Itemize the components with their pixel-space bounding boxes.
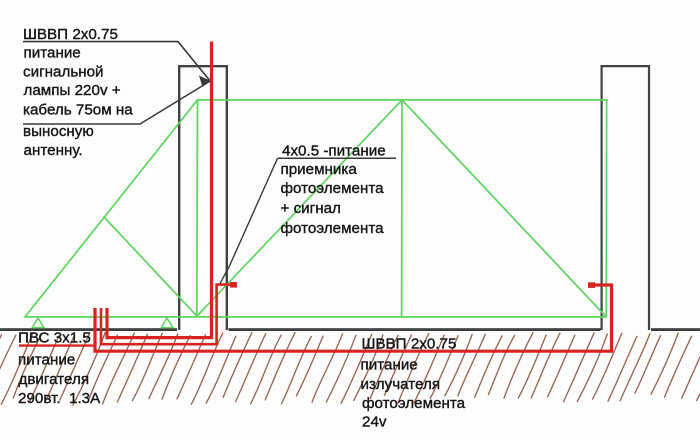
svg-text:приемника: приемника (281, 161, 358, 178)
svg-text:фотоэлемента: фотоэлемента (281, 180, 385, 197)
svg-text:выносную: выносную (23, 123, 94, 140)
svg-text:питание: питание (24, 45, 81, 62)
svg-text:4х0.5 -питание: 4х0.5 -питание (282, 142, 386, 159)
svg-text:ПВС 3х1.5: ПВС 3х1.5 (18, 330, 91, 347)
svg-text:антенну.: антенну. (24, 142, 83, 159)
svg-text:ШВВП 2х0.75: ШВВП 2х0.75 (23, 26, 118, 43)
svg-text:+ сигнал: + сигнал (281, 200, 341, 217)
svg-text:кабель 75ом на: кабель 75ом на (23, 102, 133, 119)
svg-text:24v: 24v (362, 413, 387, 430)
svg-text:290вт. 1.3А: 290вт. 1.3А (18, 390, 101, 407)
svg-text:лампы 220v +: лампы 220v + (24, 82, 121, 99)
svg-text:двигателя: двигателя (19, 371, 90, 388)
svg-text:питание: питание (361, 357, 418, 374)
svg-text:излучателя: излучателя (361, 376, 441, 393)
svg-text:фотоэлемента: фотоэлемента (281, 220, 385, 237)
svg-text:сигнальной: сигнальной (23, 63, 104, 80)
svg-text:питание: питание (18, 352, 75, 369)
svg-text:ШВВП 2х0.75: ШВВП 2х0.75 (362, 336, 457, 353)
svg-text:фотоэлемента: фотоэлемента (362, 395, 466, 412)
